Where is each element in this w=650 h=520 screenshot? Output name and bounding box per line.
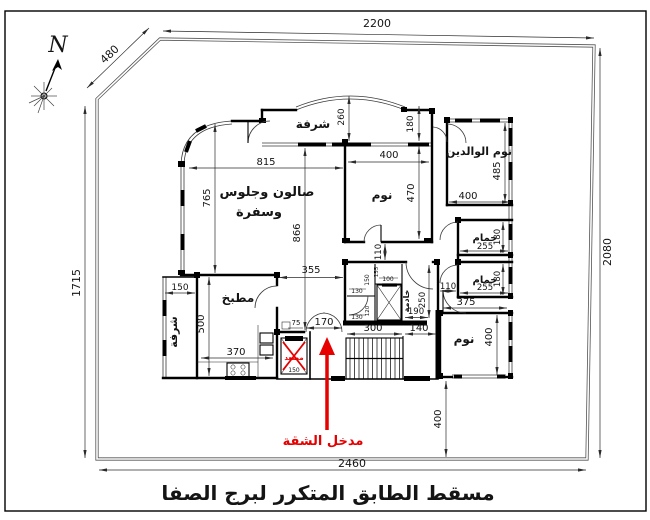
dim-entrance-door: 170: [314, 317, 333, 328]
dim-salon-left-height: 765: [202, 188, 213, 207]
label-parents-bedroom: نوم الوالدين: [446, 145, 512, 158]
dim-duct-height: 155: [374, 266, 380, 277]
label-bedroom-right: نوم: [454, 332, 475, 347]
dim-lobby-elevator: 150: [288, 367, 300, 374]
dim-bedroom-top-height: 470: [406, 183, 417, 202]
dim-wc2-width: 130: [351, 314, 363, 321]
floor-plan-canvas: 2200 480 1715 2080 2460 N: [0, 0, 650, 520]
dim-balcony-depth: 260: [337, 108, 347, 125]
dim-site-right: 2080: [601, 238, 614, 266]
label-salon-1: صالون وجلوس: [220, 185, 315, 200]
dim-hall-width: 110: [440, 282, 456, 292]
elevator-label: مصعد: [284, 354, 303, 362]
dim-parents-width: 400: [458, 191, 477, 202]
label-maid-room: خادمة: [402, 289, 411, 312]
dim-bedroom-top-width: 400: [379, 150, 398, 161]
label-bedroom-top: نوم: [372, 188, 393, 203]
dim-bedroom-right-width: 375: [456, 297, 475, 308]
entrance-note: مدخل الشقة: [283, 434, 364, 449]
dim-corridor-width: 110: [374, 244, 384, 260]
dim-lobby-width: 355: [301, 265, 320, 276]
label-kitchen: مطبخ: [222, 291, 255, 305]
dim-kitchen-width: 370: [226, 347, 245, 358]
dim-duct-width: 100: [382, 276, 394, 283]
dim-salon-width: 815: [256, 157, 275, 168]
label-salon-2: وسفرة: [236, 205, 282, 220]
dim-landing-width: 140: [409, 323, 428, 334]
dim-site-top: 2200: [363, 17, 391, 30]
site-boundary: [97, 39, 594, 459]
dim-balcony-left-width: 150: [171, 283, 188, 293]
north-label: N: [47, 33, 68, 58]
dim-wc1-width: 130: [351, 288, 363, 295]
dim-maid-height: 250: [418, 292, 428, 308]
dim-salon-total-height: 866: [292, 223, 303, 242]
dim-wc1-height: 150: [364, 274, 371, 286]
dim-stairs-width: 300: [363, 323, 382, 334]
dim-site-left: 1715: [70, 269, 83, 297]
dim-kitchen-height: 500: [196, 314, 207, 333]
label-bathroom-upper: حمام: [473, 233, 498, 244]
label-balcony-top: شرفة: [296, 117, 330, 131]
dim-parents-height: 485: [492, 161, 503, 180]
label-balcony-left: شرفة: [167, 316, 180, 348]
dim-rear-setback: 400: [433, 409, 444, 428]
label-bathroom-lower: حمام: [473, 275, 498, 286]
dim-bedroom-right-height: 400: [484, 327, 495, 346]
dim-entry-recess: 180: [406, 115, 416, 132]
dim-entry-jamb: 75: [292, 319, 301, 327]
drawing-title: مسقط الطابق المتكرر لبرج الصفا: [161, 481, 494, 505]
dim-site-bottom: 2460: [338, 457, 366, 470]
dim-wc2-height: 120: [365, 305, 371, 316]
